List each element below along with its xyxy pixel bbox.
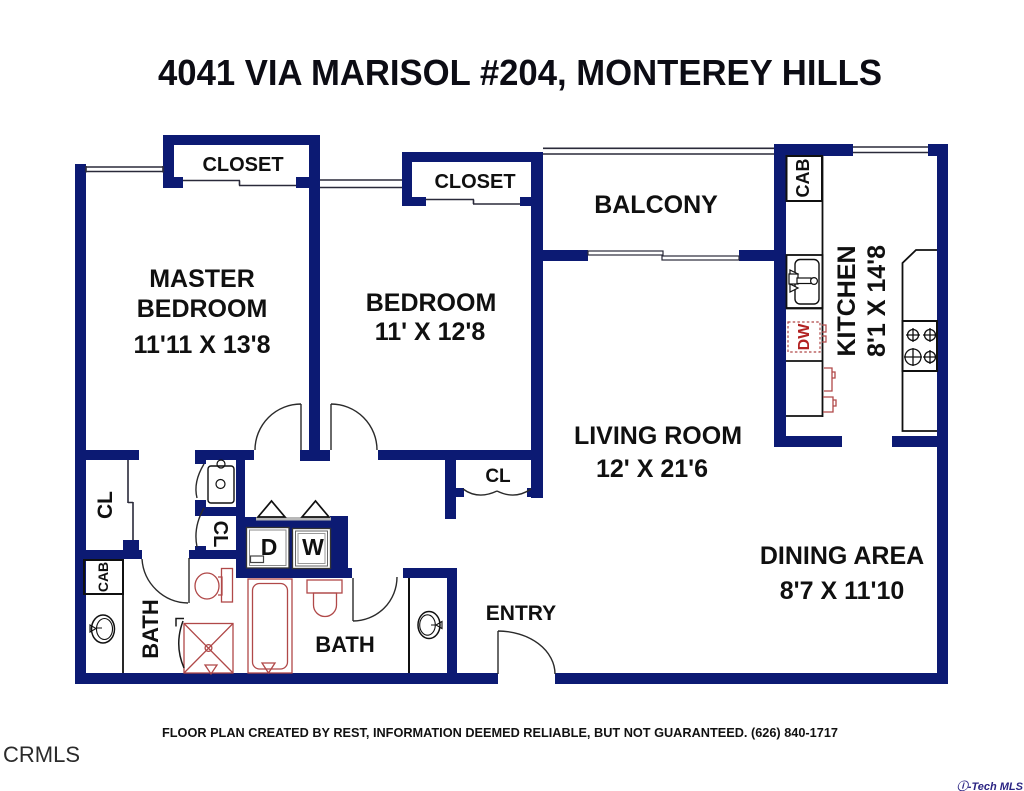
svg-text:ⓘ-Tech MLS: ⓘ-Tech MLS [957,780,1024,791]
svg-text:CL: CL [94,491,117,519]
svg-text:BEDROOM: BEDROOM [366,289,497,317]
svg-text:DINING AREA: DINING AREA [760,542,924,570]
svg-text:W: W [302,534,324,560]
svg-text:DW: DW [796,323,813,351]
svg-text:BALCONY: BALCONY [594,191,718,219]
svg-text:11'11 X 13'8: 11'11 X 13'8 [133,331,270,359]
svg-text:MASTER: MASTER [149,265,255,293]
svg-text:CAB: CAB [793,159,813,198]
svg-text:12' X 21'6: 12' X 21'6 [596,455,708,483]
svg-text:CLOSET: CLOSET [202,154,283,176]
svg-text:BATH: BATH [315,632,374,657]
svg-text:CLOSET: CLOSET [434,171,515,193]
svg-text:D: D [261,534,278,560]
svg-text:CAB: CAB [95,562,111,592]
svg-text:CL: CL [209,521,231,548]
svg-text:4041 VIA MARISOL #204, MONTERE: 4041 VIA MARISOL #204, MONTEREY HILLS [158,52,882,93]
svg-text:8'7 X 11'10: 8'7 X 11'10 [780,577,905,605]
svg-text:BATH: BATH [138,599,163,658]
svg-text:KITCHEN: KITCHEN [833,245,861,356]
svg-text:CRMLS: CRMLS [3,742,80,767]
svg-text:FLOOR PLAN CREATED BY REST, IN: FLOOR PLAN CREATED BY REST, INFORMATION … [162,725,838,740]
svg-text:CL: CL [485,466,511,487]
svg-text:BEDROOM: BEDROOM [137,295,268,323]
svg-text:ENTRY: ENTRY [486,602,556,625]
svg-text:LIVING ROOM: LIVING ROOM [574,422,742,450]
svg-text:8'1 X 14'8: 8'1 X 14'8 [863,245,891,357]
svg-text:11' X 12'8: 11' X 12'8 [375,318,486,346]
